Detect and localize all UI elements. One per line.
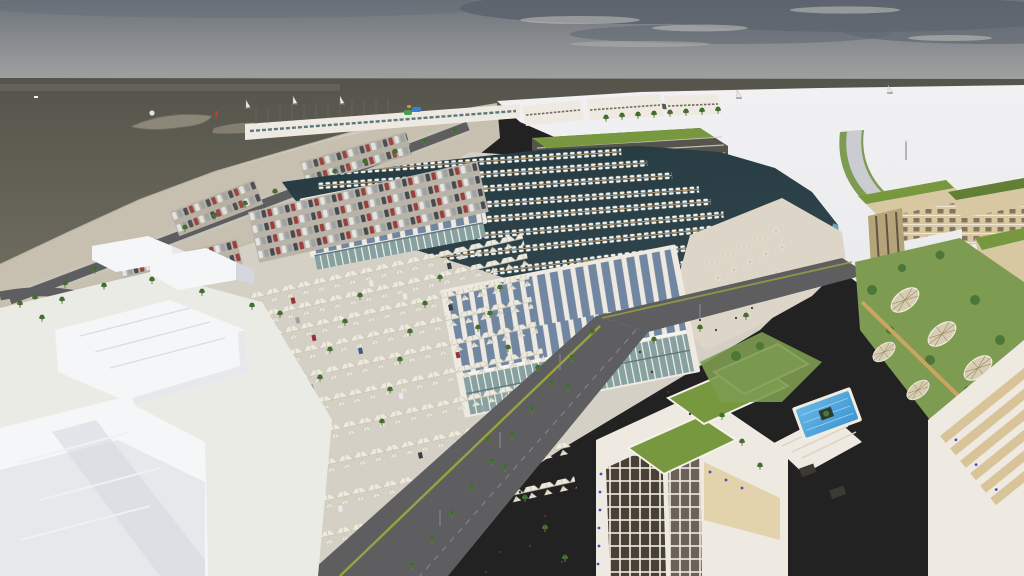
distant-boat — [34, 96, 38, 98]
palm-tree — [562, 555, 568, 562]
sea-sheen — [0, 84, 340, 91]
deck-mat — [829, 486, 846, 500]
light-pole-head — [905, 140, 907, 142]
beach-umbrella-far — [149, 110, 154, 115]
marina-rendering — [0, 0, 1024, 576]
rendering-canvas — [0, 0, 1024, 576]
palm-tree — [542, 525, 548, 532]
red-beacon — [215, 111, 218, 117]
